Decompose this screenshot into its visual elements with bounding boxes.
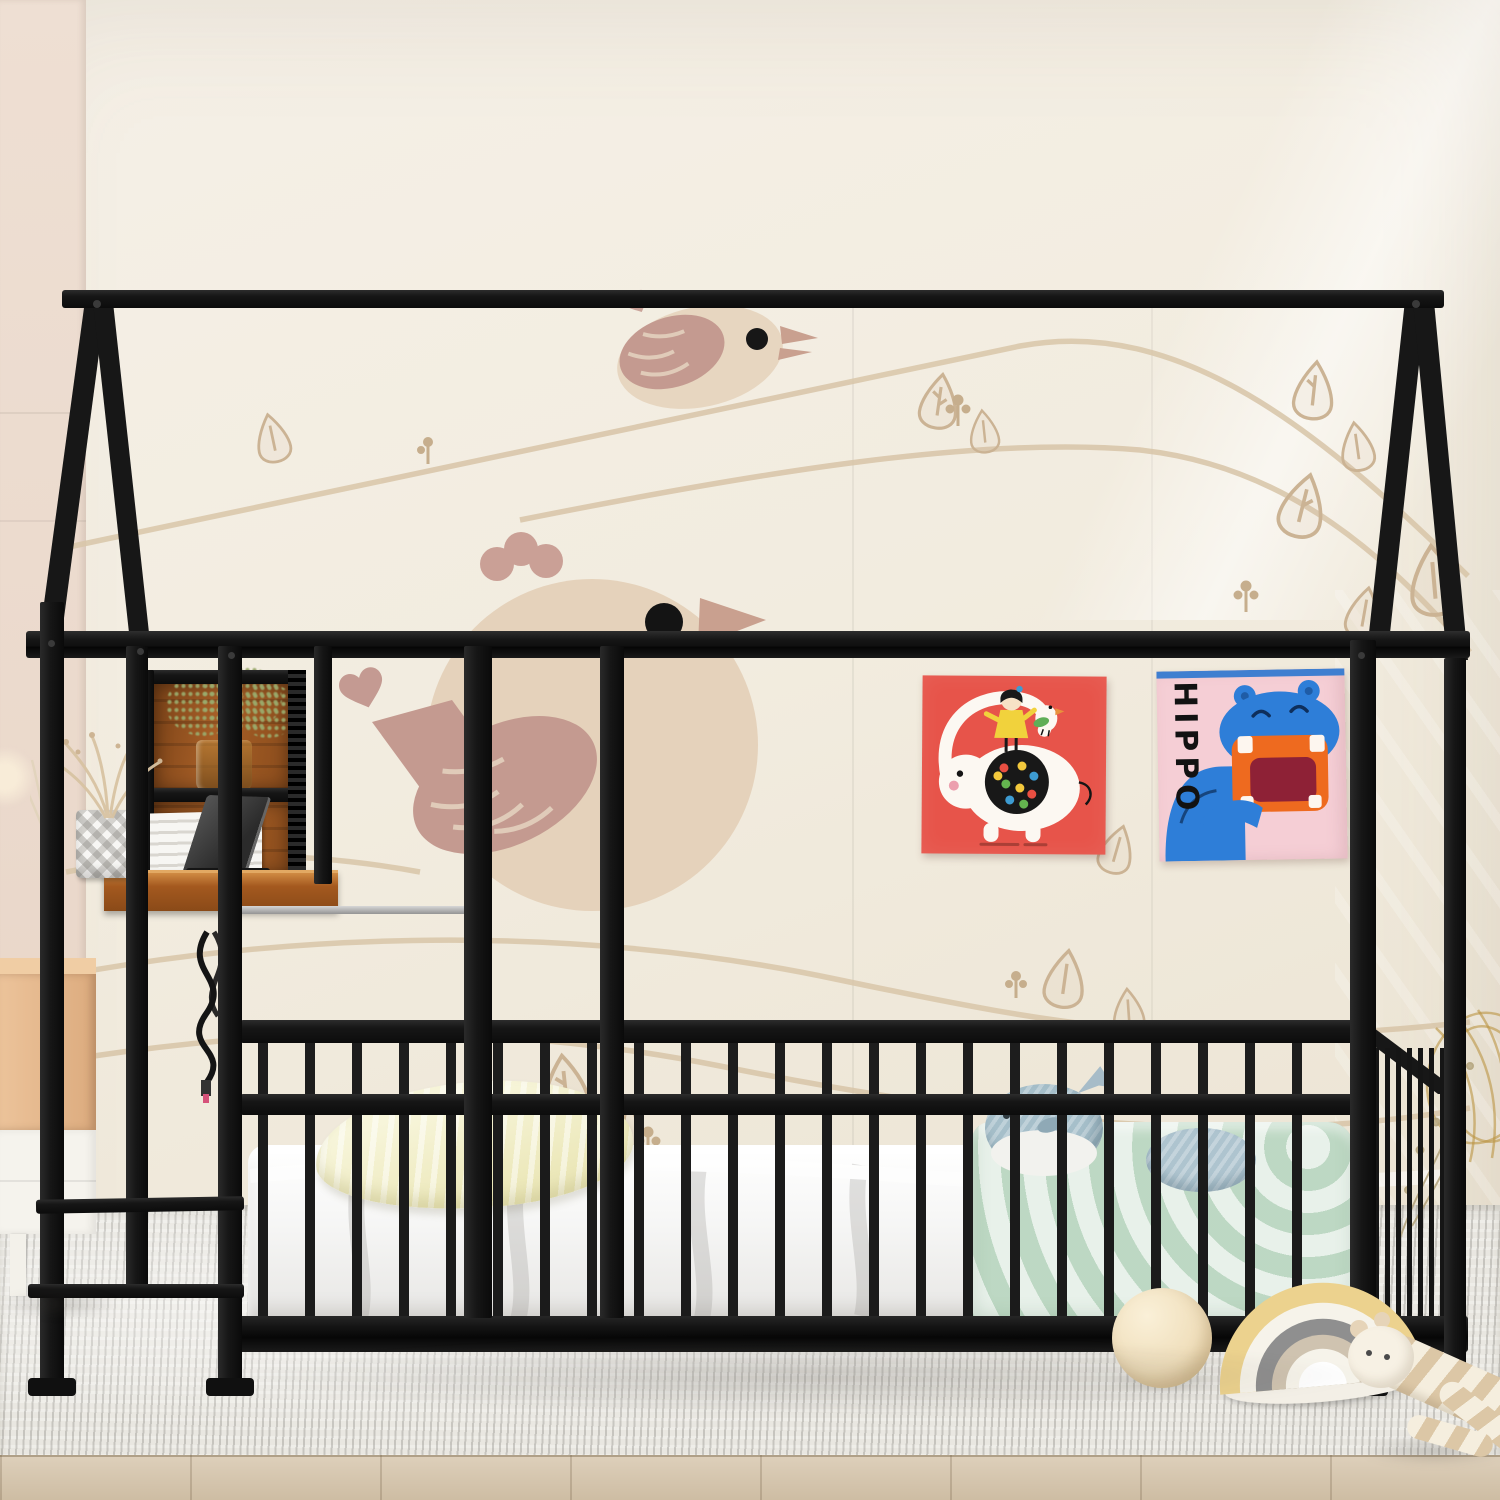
fence-bar — [822, 1115, 832, 1318]
fence-bar — [1057, 1115, 1067, 1318]
fence-bar — [728, 1115, 738, 1318]
bolt — [137, 648, 144, 655]
fence-bar — [399, 1043, 409, 1096]
bolt — [93, 300, 101, 308]
fence-bar — [305, 1115, 315, 1318]
bolt — [48, 640, 55, 647]
left-gable-back-leg — [92, 293, 150, 642]
fence-bar — [681, 1043, 691, 1096]
fence-bar — [399, 1115, 409, 1318]
post-back-left — [126, 646, 148, 1292]
under-bed-shadow — [230, 1336, 1380, 1416]
kids-room-photo: HIPPO — [0, 0, 1500, 1500]
fence-bar — [493, 1043, 503, 1096]
shelf-post — [314, 646, 332, 884]
fence-bar — [1010, 1043, 1020, 1096]
fence-bar — [916, 1043, 926, 1096]
fence-top-rail — [240, 1020, 1354, 1043]
nightstand-shadow — [0, 1290, 120, 1318]
fence-bar — [728, 1043, 738, 1096]
corner-post-front-left — [40, 602, 64, 1392]
giraffe-eye — [1384, 1354, 1390, 1360]
fence-bar — [1151, 1043, 1161, 1096]
fence-bar — [1010, 1115, 1020, 1318]
fence-bar — [446, 1115, 456, 1318]
fence-bar — [916, 1115, 926, 1318]
roof-ridge-bar — [62, 290, 1444, 308]
fence-bar — [587, 1115, 597, 1318]
desk-post — [218, 646, 242, 1392]
fence-mid-rail — [240, 1094, 1354, 1115]
fence-bar — [446, 1043, 456, 1096]
corner-post-back-right — [1444, 658, 1466, 1386]
fence-bar — [305, 1043, 315, 1096]
fence-bar — [540, 1043, 550, 1096]
fence-bar — [493, 1115, 503, 1318]
fence-bar — [634, 1115, 644, 1318]
fence-bar — [1104, 1115, 1114, 1318]
fence-bar — [681, 1115, 691, 1318]
mid-post-left — [464, 646, 492, 1318]
frame-foot — [28, 1378, 76, 1396]
fence-bar — [1198, 1115, 1208, 1318]
fence-bar — [1057, 1043, 1067, 1096]
fence-bar — [634, 1043, 644, 1096]
giraffe-eye — [1366, 1350, 1372, 1356]
fence-bar — [1292, 1043, 1302, 1096]
fence-bar — [775, 1115, 785, 1318]
mid-post-right — [600, 646, 624, 1318]
bolt — [1412, 300, 1420, 308]
fence-bar — [775, 1043, 785, 1096]
fence-bar — [587, 1043, 597, 1096]
left-gable-front-leg — [40, 293, 107, 633]
fence-bar — [1245, 1043, 1255, 1096]
fence-bar — [352, 1115, 362, 1318]
bolt — [228, 652, 235, 659]
eave-bar — [26, 631, 1470, 658]
bolt — [1358, 652, 1365, 659]
fence-bar — [258, 1043, 268, 1096]
fence-bar — [822, 1043, 832, 1096]
fence-bar — [963, 1043, 973, 1096]
fence-bar — [1198, 1043, 1208, 1096]
fence-bar — [1104, 1043, 1114, 1096]
fence-bar — [258, 1115, 268, 1318]
fence-bar — [869, 1115, 879, 1318]
footboard-slat — [1429, 1048, 1434, 1316]
fence-bar — [540, 1115, 550, 1318]
right-gable-back-leg — [1412, 291, 1468, 660]
fence-bar — [352, 1043, 362, 1096]
fence-bar — [963, 1115, 973, 1318]
fence-bar — [869, 1043, 879, 1096]
giraffe-plush-toy — [1340, 1318, 1500, 1488]
